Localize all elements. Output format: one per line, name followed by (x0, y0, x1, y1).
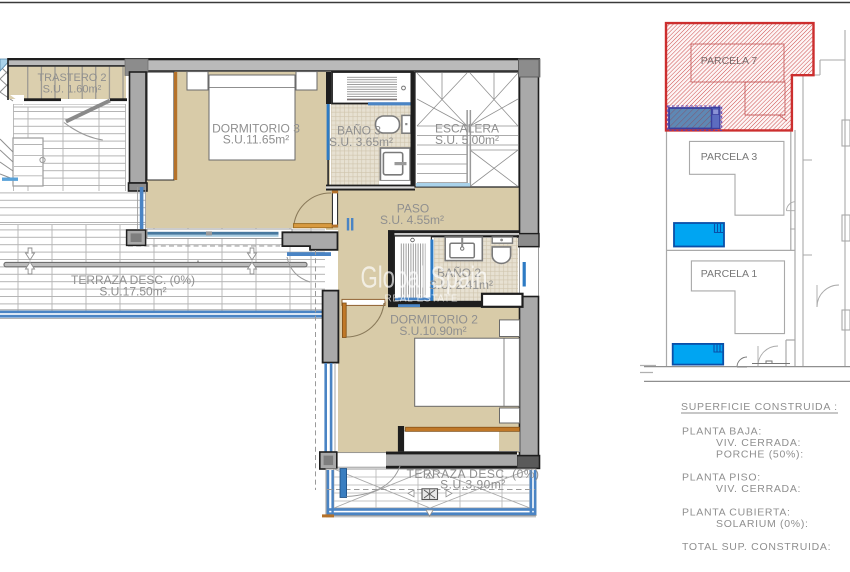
svg-text:S.U. 5.00m²: S.U. 5.00m² (435, 133, 499, 147)
svg-text:TRASTERO 2: TRASTERO 2 (37, 72, 106, 84)
svg-text:REAL ESTATE: REAL ESTATE (385, 294, 458, 305)
svg-text:PLANTA PISO:: PLANTA PISO: (682, 472, 761, 484)
svg-text:PLANTA BAJA:: PLANTA BAJA: (682, 426, 762, 438)
svg-text:S.U.11.65m²: S.U.11.65m² (223, 133, 289, 147)
svg-text:S.U. 3.65m²: S.U. 3.65m² (329, 135, 393, 149)
svg-text:S.U.3.90m²: S.U.3.90m² (440, 478, 506, 492)
svg-text:S.U. 4.55m²: S.U. 4.55m² (380, 213, 444, 227)
svg-text:S.U.10.90m²: S.U.10.90m² (399, 324, 466, 338)
svg-text:PARCELA 1: PARCELA 1 (701, 268, 758, 280)
svg-text:VIV. CERRADA:: VIV. CERRADA: (716, 437, 801, 449)
svg-text:SOLARIUM (0%):: SOLARIUM (0%): (716, 518, 809, 530)
svg-text:VIV. CERRADA:: VIV. CERRADA: (716, 483, 801, 495)
svg-text:PARCELA 3: PARCELA 3 (701, 151, 758, 163)
svg-text:TOTAL SUP. CONSTRUIDA:: TOTAL SUP. CONSTRUIDA: (682, 541, 831, 553)
svg-text:SUPERFICIE CONSTRUIDA :: SUPERFICIE CONSTRUIDA : (681, 401, 838, 413)
svg-text:PLANTA CUBIERTA:: PLANTA CUBIERTA: (682, 507, 791, 519)
svg-text:S.U. 1.60m²: S.U. 1.60m² (43, 84, 102, 96)
svg-text:PORCHE (50%):: PORCHE (50%): (716, 449, 804, 461)
svg-text:PARCELA 7: PARCELA 7 (701, 55, 758, 67)
svg-text:S.U.17.50m²: S.U.17.50m² (99, 285, 166, 299)
svg-text:Global Spain: Global Spain (361, 260, 488, 295)
